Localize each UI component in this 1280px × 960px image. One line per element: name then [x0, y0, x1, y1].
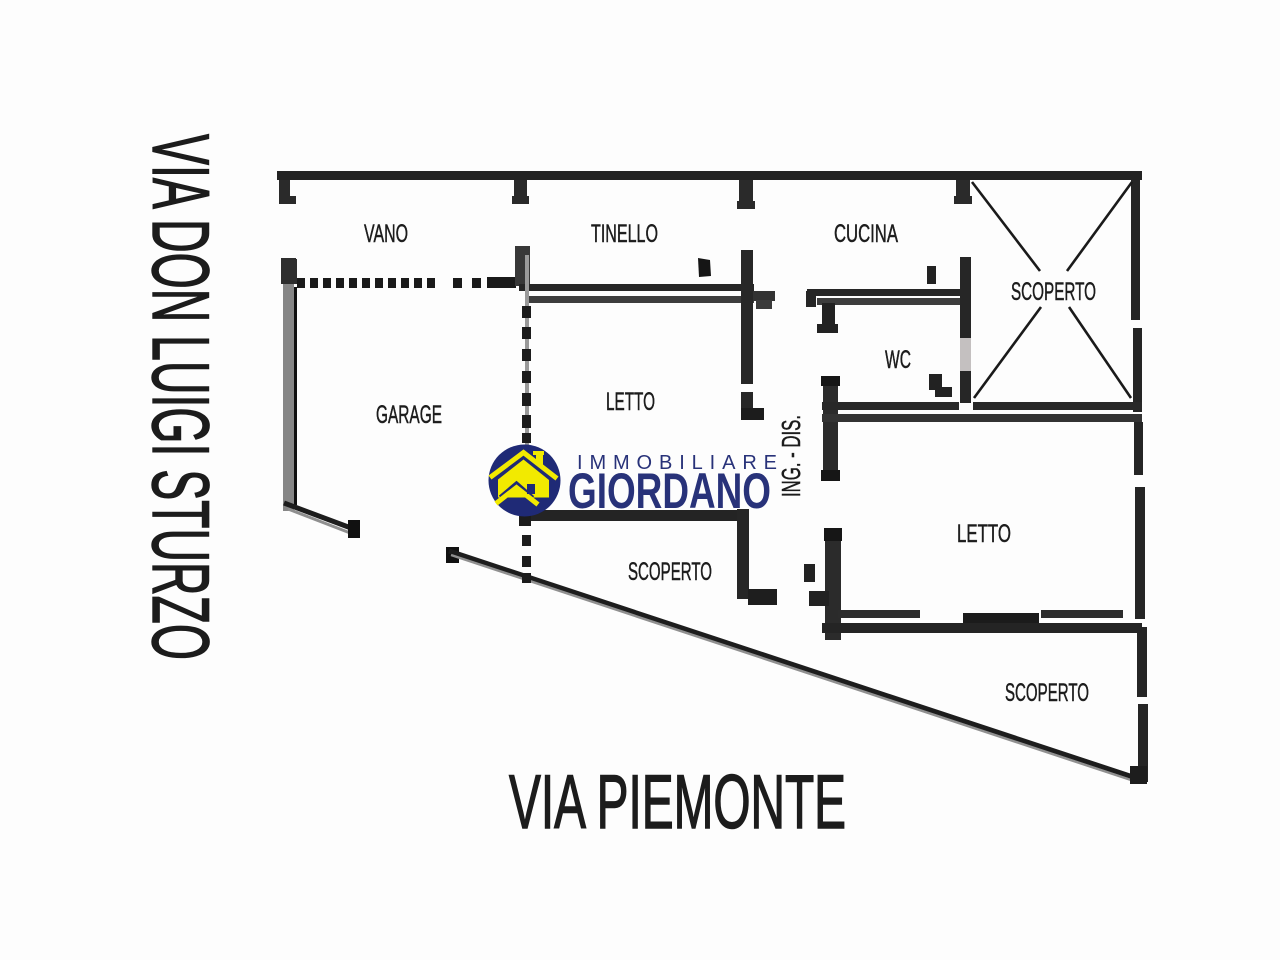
svg-text:SCOPERTO: SCOPERTO [628, 558, 712, 586]
svg-text:VIA PIEMONTE: VIA PIEMONTE [509, 760, 846, 845]
svg-text:LETTO: LETTO [957, 520, 1011, 548]
svg-text:VIA DON LUIGI STURZO: VIA DON LUIGI STURZO [135, 134, 225, 660]
svg-text:SCOPERTO: SCOPERTO [1011, 278, 1096, 306]
svg-text:VANO: VANO [364, 220, 408, 248]
svg-text:CUCINA: CUCINA [834, 220, 898, 248]
svg-text:SCOPERTO: SCOPERTO [1005, 679, 1089, 707]
svg-text:TINELLO: TINELLO [591, 220, 658, 248]
svg-text:GIORDANO: GIORDANO [568, 463, 771, 519]
svg-text:LETTO: LETTO [606, 388, 655, 416]
svg-text:ING. - DIS.: ING. - DIS. [776, 415, 806, 497]
svg-text:WC: WC [885, 346, 911, 374]
svg-text:GARAGE: GARAGE [376, 401, 442, 429]
